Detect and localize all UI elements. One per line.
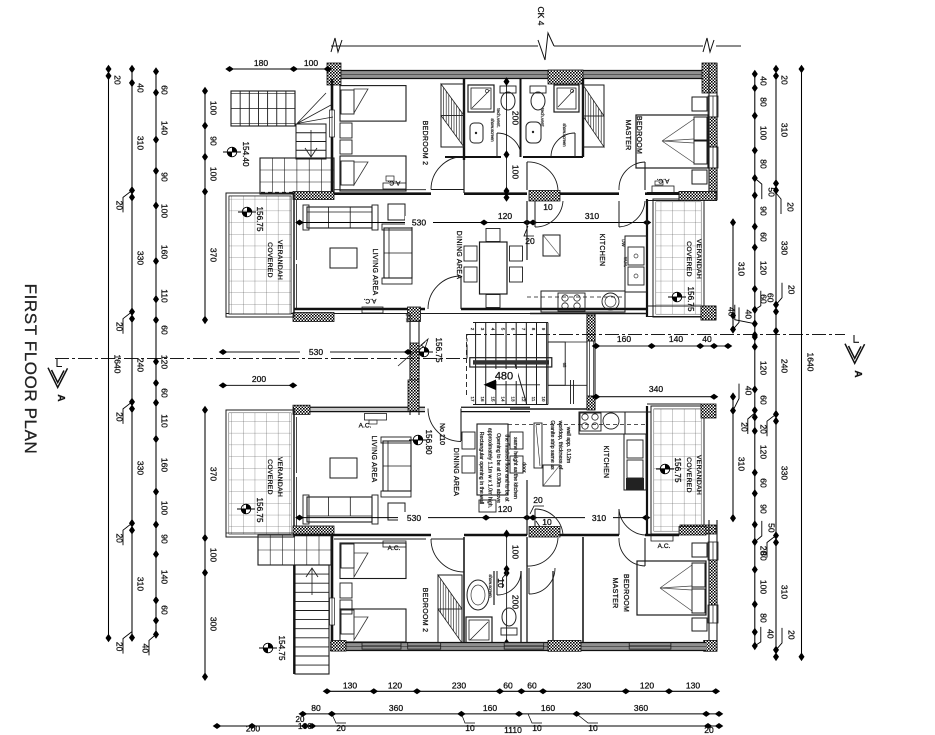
svg-text:10: 10 (465, 723, 475, 733)
svg-text:40: 40 (141, 644, 151, 654)
svg-text:65: 65 (562, 363, 567, 368)
svg-text:60: 60 (758, 478, 768, 488)
svg-text:160: 160 (541, 703, 555, 713)
svg-text:330: 330 (136, 461, 146, 475)
svg-text:approximately 1.1m w x 1.0m hi: approximately 1.1m w x 1.0m high. (487, 428, 493, 508)
svg-text:360: 360 (634, 703, 648, 713)
svg-text:100: 100 (511, 545, 521, 559)
svg-text:VERANDAH: VERANDAH (695, 239, 702, 279)
svg-text:11: 11 (531, 397, 536, 402)
svg-text:154.40: 154.40 (241, 141, 250, 166)
svg-text:80: 80 (758, 159, 768, 169)
svg-text:show.screen: show.screen (488, 574, 493, 598)
svg-text:110: 110 (160, 414, 170, 428)
svg-text:MASTER: MASTER (624, 120, 631, 151)
svg-text:160: 160 (617, 334, 631, 344)
svg-text:20: 20 (759, 546, 769, 556)
svg-text:COVERED: COVERED (685, 457, 692, 493)
svg-text:100: 100 (160, 501, 170, 515)
svg-text:A.C.: A.C. (359, 423, 372, 430)
svg-text:140: 140 (160, 570, 170, 584)
svg-text:120: 120 (758, 261, 768, 275)
svg-text:show.screen: show.screen (562, 123, 567, 147)
svg-text:20: 20 (780, 75, 790, 85)
svg-text:13: 13 (511, 396, 516, 402)
svg-text:door.: door. (521, 462, 527, 474)
svg-text:310: 310 (737, 457, 747, 471)
svg-text:340: 340 (649, 384, 663, 394)
svg-text:20: 20 (533, 495, 543, 505)
svg-text:90: 90 (160, 534, 170, 544)
svg-text:120: 120 (758, 361, 768, 375)
svg-text:LIVING AREA: LIVING AREA (370, 436, 377, 483)
svg-text:60: 60 (765, 293, 775, 303)
svg-text:120: 120 (640, 680, 654, 690)
svg-text:310: 310 (585, 211, 599, 221)
svg-text:310: 310 (780, 123, 790, 137)
svg-text:140: 140 (669, 334, 683, 344)
svg-text:Opening to be at 0.90m above: Opening to be at 0.90m above (495, 433, 501, 503)
svg-text:160: 160 (160, 245, 170, 259)
svg-text:50: 50 (766, 523, 776, 533)
svg-text:310: 310 (592, 513, 606, 523)
svg-text:60: 60 (758, 395, 768, 405)
svg-text:60: 60 (160, 605, 170, 615)
svg-text:A.C.: A.C. (388, 545, 401, 552)
svg-text:154.75: 154.75 (277, 635, 286, 660)
svg-text:360: 360 (389, 703, 403, 713)
svg-text:60: 60 (160, 388, 170, 398)
svg-text:40: 40 (727, 307, 737, 317)
svg-text:tech.vent.: tech.vent. (540, 108, 545, 128)
svg-text:A: A (55, 394, 66, 401)
svg-text:20: 20 (115, 201, 125, 211)
svg-text:120: 120 (758, 445, 768, 459)
svg-text:LIVING AREA: LIVING AREA (371, 249, 378, 296)
svg-text:10: 10 (588, 723, 598, 733)
svg-text:480: 480 (495, 371, 513, 383)
svg-text:20: 20 (115, 642, 125, 652)
svg-text:20: 20 (704, 725, 714, 735)
svg-text:20: 20 (115, 412, 125, 422)
svg-text:530: 530 (407, 513, 421, 523)
svg-text:worktop, thickness of: worktop, thickness of (557, 421, 563, 470)
svg-text:B 50: B 50 (405, 314, 410, 323)
svg-text:130: 130 (343, 680, 357, 690)
svg-text:330: 330 (780, 466, 790, 480)
svg-text:60: 60 (503, 680, 513, 690)
svg-text:A: A (852, 370, 863, 377)
svg-text:KITCHEN: KITCHEN (602, 446, 609, 479)
svg-text:MASTER: MASTER (611, 578, 618, 609)
svg-text:156.75: 156.75 (686, 286, 695, 311)
svg-text:BEDROOM: BEDROOM (635, 116, 642, 154)
svg-text:200: 200 (246, 724, 260, 734)
svg-text:90: 90 (758, 206, 768, 216)
svg-text:40: 40 (744, 386, 754, 396)
svg-text:FIRST FLOOR PLAN: FIRST FLOOR PLAN (21, 284, 40, 455)
svg-text:90: 90 (160, 172, 170, 182)
svg-text:160: 160 (483, 703, 497, 713)
svg-text:156.75: 156.75 (255, 206, 264, 231)
svg-text:COVERED: COVERED (266, 459, 273, 495)
svg-text:Rectangular opening in the wal: Rectangular opening in the wall (478, 432, 484, 504)
svg-text:10: 10 (496, 578, 506, 588)
svg-text:330: 330 (780, 241, 790, 255)
svg-text:40: 40 (765, 629, 775, 639)
svg-text:120: 120 (160, 355, 170, 369)
svg-text:20: 20 (787, 285, 797, 295)
svg-text:330: 330 (136, 251, 146, 265)
svg-text:10: 10 (542, 517, 552, 527)
svg-text:16: 16 (480, 396, 485, 402)
svg-text:230: 230 (452, 680, 466, 690)
svg-text:310: 310 (136, 577, 146, 591)
svg-text:VERANDAH: VERANDAH (276, 457, 283, 497)
svg-text:10: 10 (543, 202, 553, 212)
svg-text:20: 20 (115, 533, 125, 543)
svg-text:80: 80 (758, 613, 768, 623)
svg-text:200: 200 (511, 111, 521, 125)
svg-text:BEDROOM: BEDROOM (622, 574, 629, 612)
svg-text:DINING AREA: DINING AREA (452, 448, 459, 496)
svg-text:No 110: No 110 (438, 423, 445, 445)
svg-text:156.75: 156.75 (434, 337, 443, 362)
svg-text:100: 100 (511, 165, 521, 179)
svg-text:120: 120 (498, 504, 512, 514)
svg-text:100: 100 (758, 580, 768, 594)
svg-text:370: 370 (209, 467, 219, 481)
svg-text:tech.vent.: tech.vent. (496, 108, 501, 128)
svg-text:156.80: 156.80 (424, 429, 433, 454)
svg-text:90: 90 (758, 504, 768, 514)
svg-text:CK 4: CK 4 (536, 7, 546, 26)
svg-text:100: 100 (160, 204, 170, 218)
svg-text:160: 160 (160, 458, 170, 472)
svg-text:240: 240 (780, 359, 790, 373)
svg-text:130: 130 (686, 680, 700, 690)
svg-text:VERANDAH: VERANDAH (695, 455, 702, 495)
svg-text:310: 310 (136, 136, 146, 150)
svg-text:Granite strip same as: Granite strip same as (549, 420, 555, 470)
svg-text:20: 20 (113, 75, 123, 85)
svg-text:110: 110 (160, 289, 170, 303)
svg-text:40: 40 (744, 310, 754, 320)
svg-text:17: 17 (470, 396, 475, 402)
svg-text:BEDROOM 2: BEDROOM 2 (421, 121, 428, 166)
svg-text:120: 120 (388, 680, 402, 690)
svg-text:100: 100 (304, 58, 318, 68)
svg-text:100: 100 (209, 548, 219, 562)
svg-text:60: 60 (160, 325, 170, 335)
svg-text:10: 10 (532, 723, 542, 733)
svg-text:20: 20 (336, 723, 346, 733)
svg-text:20: 20 (296, 715, 305, 724)
svg-text:530: 530 (412, 218, 426, 228)
svg-text:80: 80 (758, 97, 768, 107)
svg-text:wall app. 0.12m: wall app. 0.12m (565, 427, 571, 463)
svg-text:10: 10 (541, 396, 546, 402)
svg-text:530: 530 (309, 347, 323, 357)
svg-text:40: 40 (758, 76, 768, 86)
svg-text:100: 100 (758, 126, 768, 140)
svg-text:1640: 1640 (806, 353, 816, 372)
svg-text:1640: 1640 (113, 355, 123, 374)
svg-text:120: 120 (498, 211, 512, 221)
svg-text:230: 230 (577, 680, 591, 690)
svg-text:COVERED: COVERED (266, 242, 273, 278)
svg-text:14: 14 (500, 396, 505, 402)
svg-text:1110: 1110 (504, 725, 522, 735)
svg-text:156.75: 156.75 (255, 497, 264, 522)
svg-text:DW: DW (621, 239, 626, 247)
svg-text:140: 140 (160, 121, 170, 135)
svg-text:100: 100 (209, 167, 219, 181)
svg-text:300: 300 (209, 617, 219, 631)
svg-text:100: 100 (209, 101, 219, 115)
svg-text:156.75: 156.75 (673, 457, 682, 482)
svg-text:DINING AREA: DINING AREA (455, 231, 462, 279)
svg-text:20: 20 (759, 424, 769, 434)
svg-text:show.screen: show.screen (490, 118, 495, 142)
svg-text:310: 310 (780, 585, 790, 599)
svg-text:80: 80 (311, 703, 321, 713)
svg-text:20: 20 (115, 322, 125, 332)
svg-text:A.C.: A.C. (658, 543, 671, 550)
svg-text:VERANDAH: VERANDAH (276, 240, 283, 280)
svg-text:20: 20 (787, 630, 797, 640)
svg-text:15: 15 (490, 396, 495, 402)
svg-text:40: 40 (136, 83, 146, 93)
svg-text:200: 200 (252, 374, 266, 384)
svg-text:90: 90 (209, 136, 219, 146)
svg-text:60: 60 (160, 85, 170, 95)
svg-text:A.C.: A.C. (387, 179, 400, 186)
svg-text:40: 40 (702, 334, 712, 344)
svg-text:20: 20 (740, 422, 750, 432)
svg-text:370: 370 (209, 248, 219, 262)
svg-text:KITCHEN: KITCHEN (598, 234, 605, 267)
svg-text:180: 180 (254, 58, 268, 68)
svg-text:60: 60 (758, 232, 768, 242)
svg-text:COVERED: COVERED (685, 241, 692, 277)
svg-text:the finished floor and to be a: the finished floor and to be at (504, 435, 510, 502)
svg-text:240: 240 (136, 358, 146, 372)
svg-text:60: 60 (527, 680, 537, 690)
svg-text:A.C.: A.C. (363, 297, 376, 304)
svg-text:same height as the kitchen: same height as the kitchen (512, 437, 518, 499)
svg-text:310: 310 (737, 262, 747, 276)
svg-text:200: 200 (511, 595, 521, 609)
svg-text:BEDROOM 2: BEDROOM 2 (421, 588, 428, 633)
svg-text:20: 20 (786, 202, 796, 212)
svg-text:W.M.: W.M. (623, 257, 628, 267)
